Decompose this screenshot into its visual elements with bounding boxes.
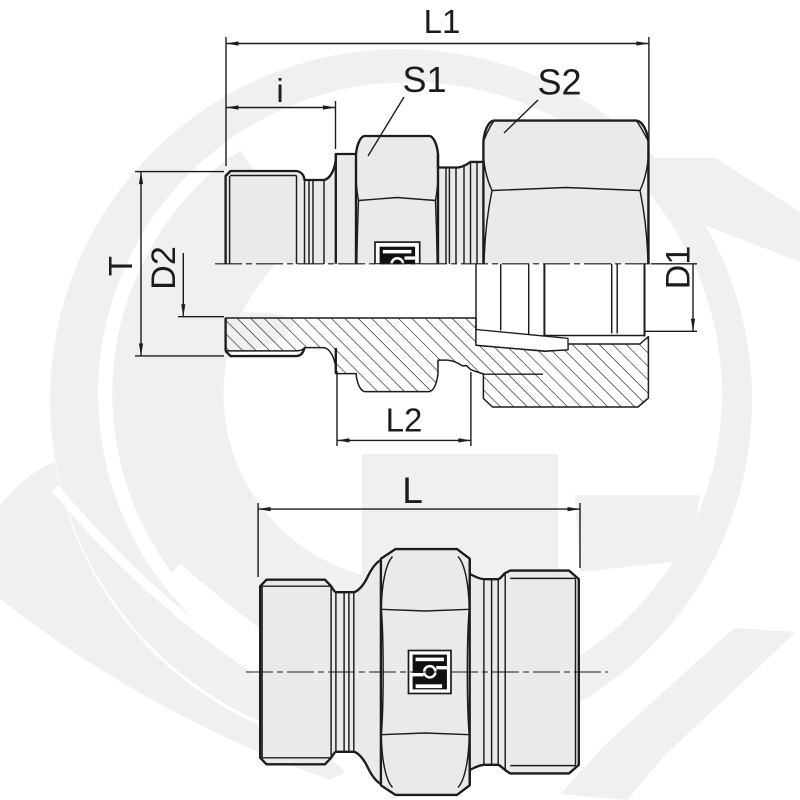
- svg-text:D1: D1: [660, 246, 698, 289]
- svg-text:i: i: [276, 72, 283, 109]
- svg-text:D2: D2: [145, 246, 183, 289]
- svg-text:S1: S1: [402, 59, 446, 100]
- svg-text:T: T: [102, 256, 139, 276]
- svg-text:S2: S2: [537, 62, 581, 103]
- svg-text:L: L: [402, 470, 423, 511]
- svg-text:L1: L1: [424, 3, 461, 40]
- svg-text:L2: L2: [386, 402, 423, 439]
